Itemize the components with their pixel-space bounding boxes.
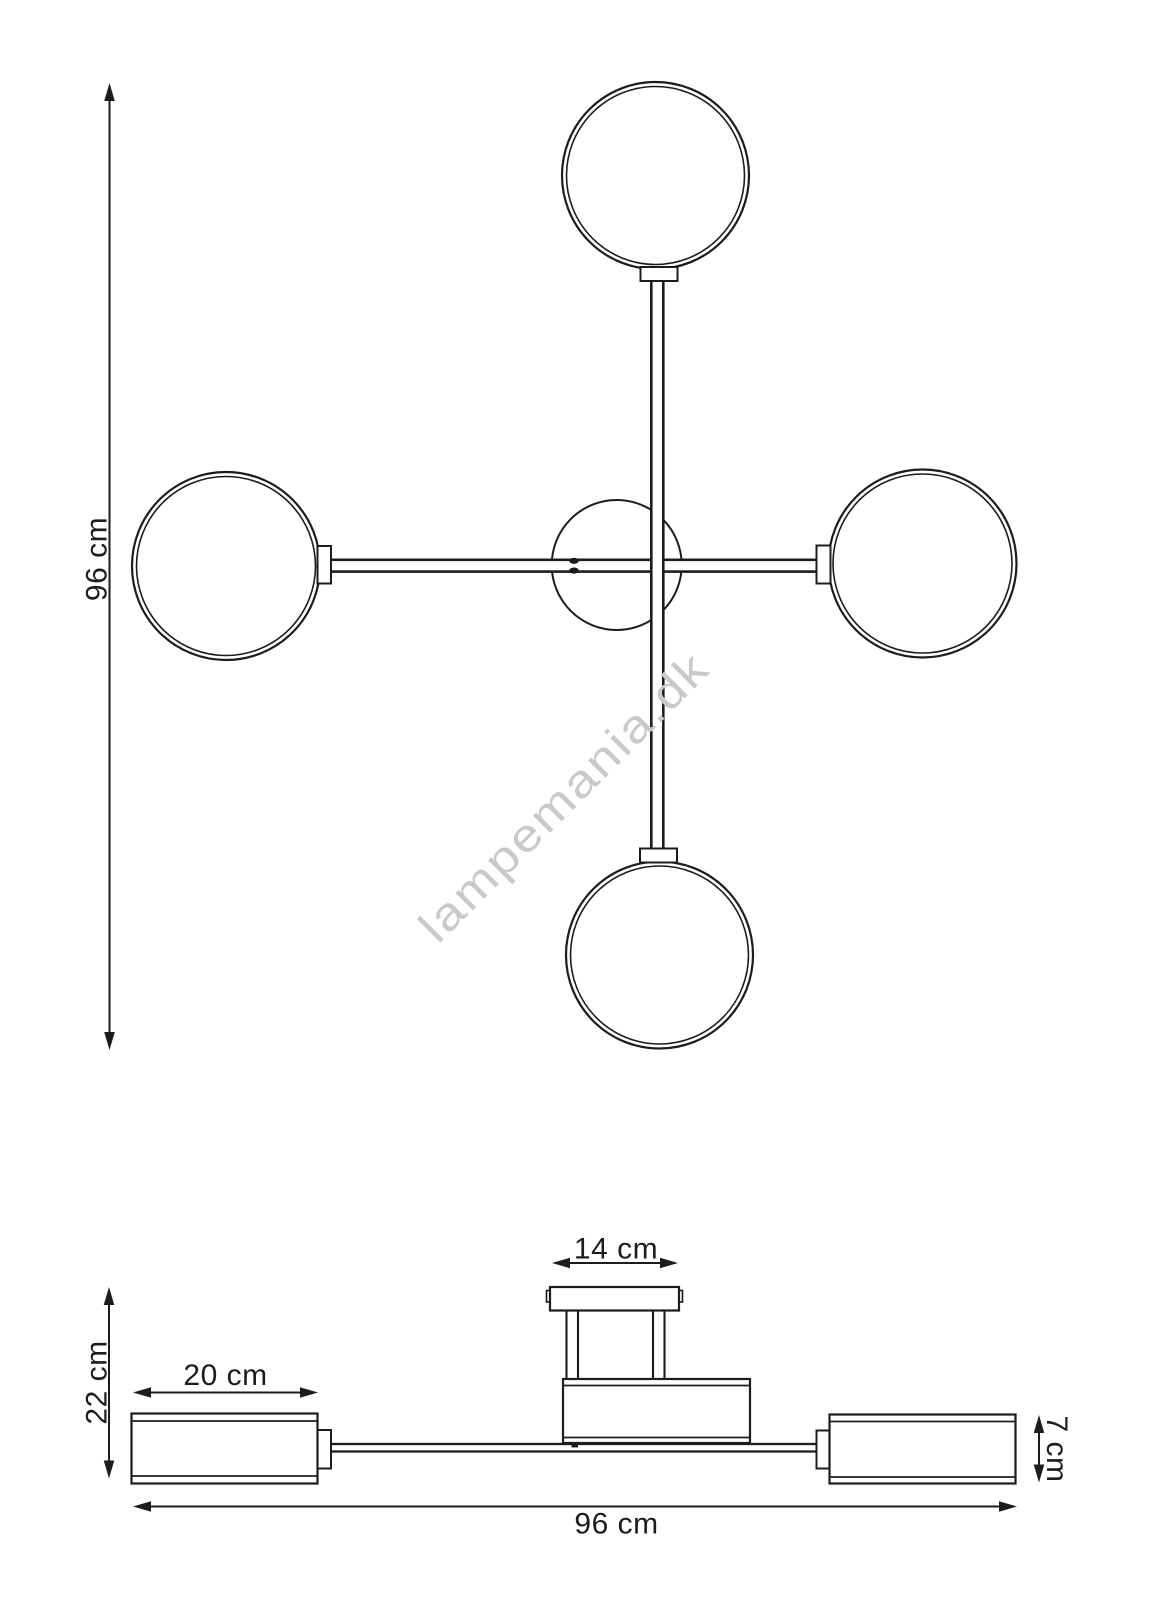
arrowhead-right — [660, 1258, 678, 1268]
side-socket-connector-right — [817, 1431, 830, 1469]
dimension-fixture-height: 22 cm — [81, 1287, 115, 1479]
top-view-height-label: 96 cm — [81, 517, 114, 601]
watermark: lampemania.dk — [408, 641, 719, 952]
mount-dot — [569, 568, 579, 574]
total-width-label: 96 cm — [574, 1508, 658, 1541]
arrowhead-right — [300, 1387, 318, 1398]
arrowhead-left — [133, 1387, 151, 1398]
socket-connector-bottom — [640, 849, 677, 863]
shade-inner-ring — [567, 87, 745, 265]
arrowhead-right — [999, 1501, 1017, 1512]
canopy-post-left — [567, 1310, 579, 1380]
arrowhead-left — [133, 1501, 151, 1512]
shade-outer-ring — [132, 472, 320, 660]
side-shade-right — [830, 1415, 1016, 1484]
arrowhead-left — [552, 1258, 570, 1268]
shade-inner-ring — [137, 477, 316, 656]
dimension-shade-length: 20 cm — [133, 1359, 318, 1398]
dimension-shade-height: 7 cm — [1034, 1415, 1073, 1483]
dimension-canopy-width: 14 cm — [552, 1233, 678, 1269]
ceiling-plate — [550, 1287, 679, 1311]
dimension-top-view-height: 96 cm — [81, 83, 115, 1050]
shade-globe-top — [562, 82, 749, 269]
shade-height-label: 7 cm — [1040, 1415, 1073, 1482]
vertical-arm — [651, 280, 663, 849]
top-view: 96 cm — [81, 82, 1017, 1050]
side-shade-left — [132, 1414, 318, 1484]
shade-body — [132, 1414, 318, 1484]
canopy-post-right — [653, 1310, 665, 1380]
shade-outer-ring — [566, 862, 753, 1049]
shade-globe-right — [829, 470, 1017, 658]
shade-body — [830, 1415, 1016, 1484]
central-body-box — [563, 1379, 750, 1443]
shade-inner-ring — [571, 866, 749, 1044]
arm-fixing-mark — [572, 1445, 579, 1448]
mount-dot — [569, 558, 579, 564]
arrowhead-down — [104, 1032, 115, 1050]
shade-outer-ring — [562, 82, 749, 269]
dimension-total-width: 96 cm — [133, 1501, 1017, 1540]
side-socket-connector-left — [318, 1430, 332, 1469]
lamp-technical-drawing-page: 96 cm lampemania.dk — [0, 0, 1149, 1600]
socket-connector-top — [641, 267, 678, 281]
shade-globe-bottom — [566, 862, 753, 1049]
shade-globe-left — [132, 472, 320, 660]
arrowhead-up — [104, 1287, 115, 1305]
canopy-width-label: 14 cm — [574, 1233, 658, 1266]
arrowhead-down — [104, 1461, 115, 1479]
arrowhead-up — [104, 83, 115, 101]
shade-inner-ring — [833, 474, 1012, 653]
socket-connector-left — [318, 546, 332, 584]
fixture-height-label: 22 cm — [81, 1340, 114, 1424]
socket-connector-right — [817, 546, 831, 584]
shade-outer-ring — [829, 470, 1017, 658]
shade-length-label: 20 cm — [183, 1359, 267, 1392]
side-view: 14 cm 22 cm 20 cm 7 cm 96 cm — [81, 1233, 1074, 1541]
central-body — [563, 1379, 750, 1443]
lamp-technical-drawing: 96 cm lampemania.dk — [0, 0, 1149, 1600]
